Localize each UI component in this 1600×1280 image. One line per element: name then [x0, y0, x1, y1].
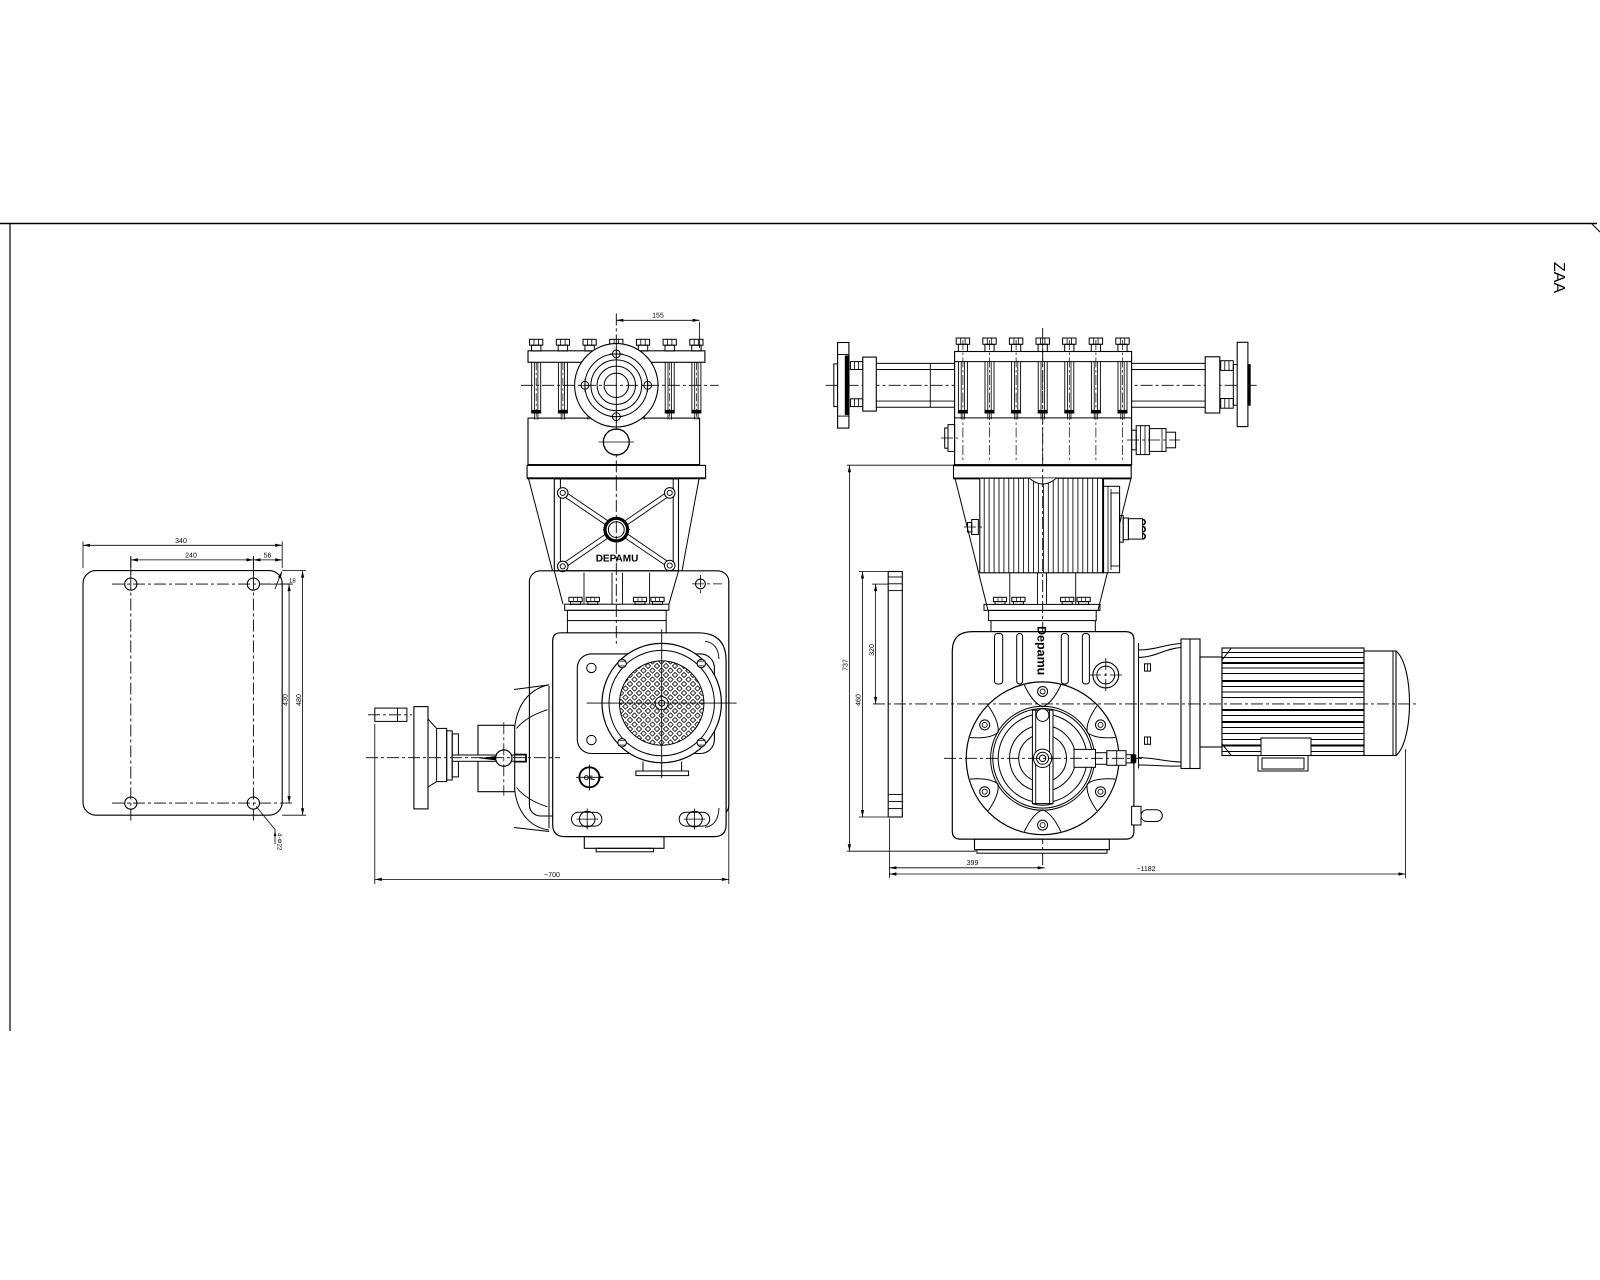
- svg-text:340: 340: [175, 538, 187, 545]
- svg-text:737: 737: [843, 659, 850, 671]
- svg-text:~1182: ~1182: [1136, 866, 1155, 873]
- svg-text:56: 56: [264, 552, 272, 559]
- svg-text:399: 399: [967, 860, 979, 867]
- svg-text:18: 18: [289, 578, 296, 585]
- svg-text:Depamu: Depamu: [1035, 626, 1049, 675]
- svg-text:~700: ~700: [544, 872, 560, 879]
- svg-text:320: 320: [869, 644, 876, 656]
- svg-text:4-Φ22: 4-Φ22: [276, 833, 283, 851]
- svg-text:DEPAMU: DEPAMU: [596, 554, 639, 565]
- svg-text:155: 155: [652, 313, 664, 320]
- svg-text:240: 240: [185, 552, 197, 559]
- svg-text:480: 480: [296, 694, 303, 706]
- svg-text:460: 460: [856, 694, 863, 706]
- svg-text:OIL: OIL: [584, 775, 595, 782]
- svg-text:430: 430: [282, 694, 289, 706]
- svg-text:ZAA: ZAA: [1550, 262, 1567, 293]
